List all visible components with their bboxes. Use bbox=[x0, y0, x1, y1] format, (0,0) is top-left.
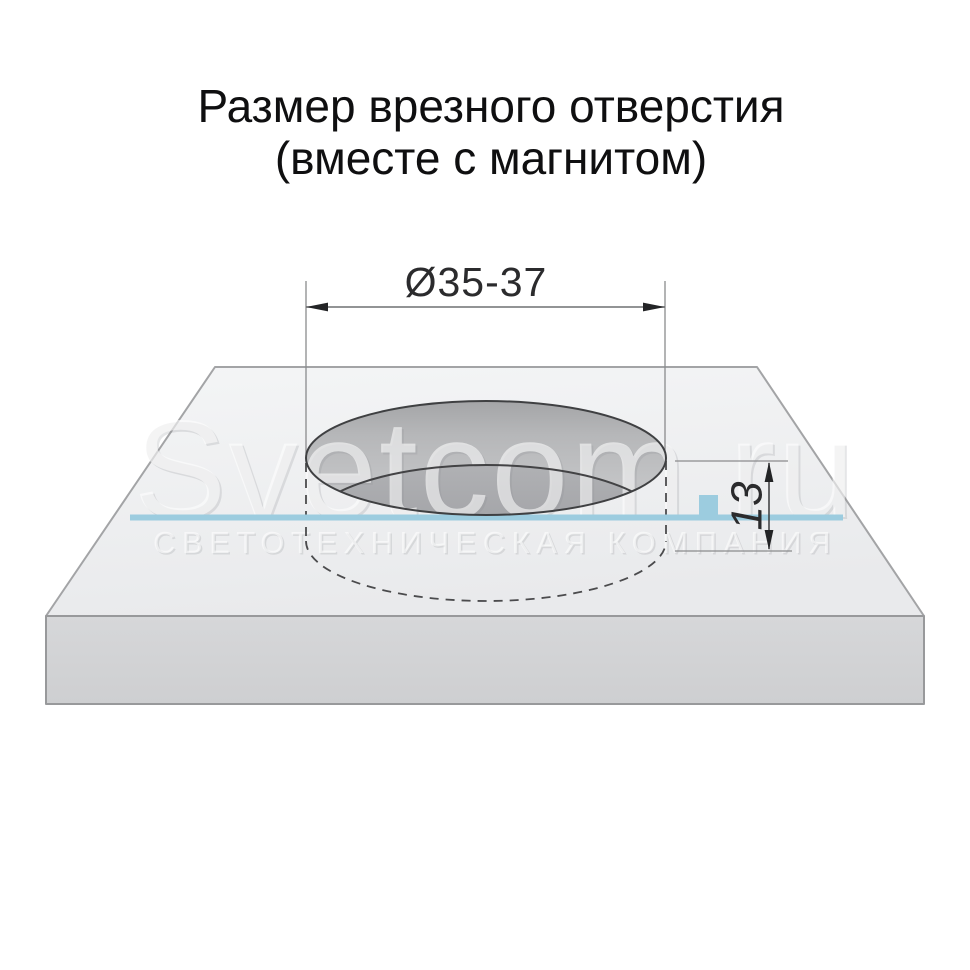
watermark: Svetcom.ru Svetcom.ru СВЕТОТЕХНИЧЕСКАЯ К… bbox=[134, 392, 859, 562]
arrowhead-left-icon bbox=[306, 303, 328, 312]
drawing-title-line1: Размер врезного отверстия bbox=[197, 80, 784, 132]
drawing-title-line2: (вместе с магнитом) bbox=[275, 132, 707, 184]
drawing-page: Размер врезного отверстия (вместе с магн… bbox=[0, 0, 970, 970]
diameter-dimension: Ø35-37 bbox=[306, 259, 665, 311]
panel-front-face bbox=[46, 616, 924, 704]
technical-drawing-canvas: Размер врезного отверстия (вместе с магн… bbox=[0, 0, 970, 970]
magnet-clip-bump bbox=[699, 495, 718, 517]
arrowhead-right-icon bbox=[643, 303, 665, 312]
diameter-dimension-label: Ø35-37 bbox=[405, 259, 548, 305]
depth-dimension-label: 13 bbox=[723, 481, 772, 530]
